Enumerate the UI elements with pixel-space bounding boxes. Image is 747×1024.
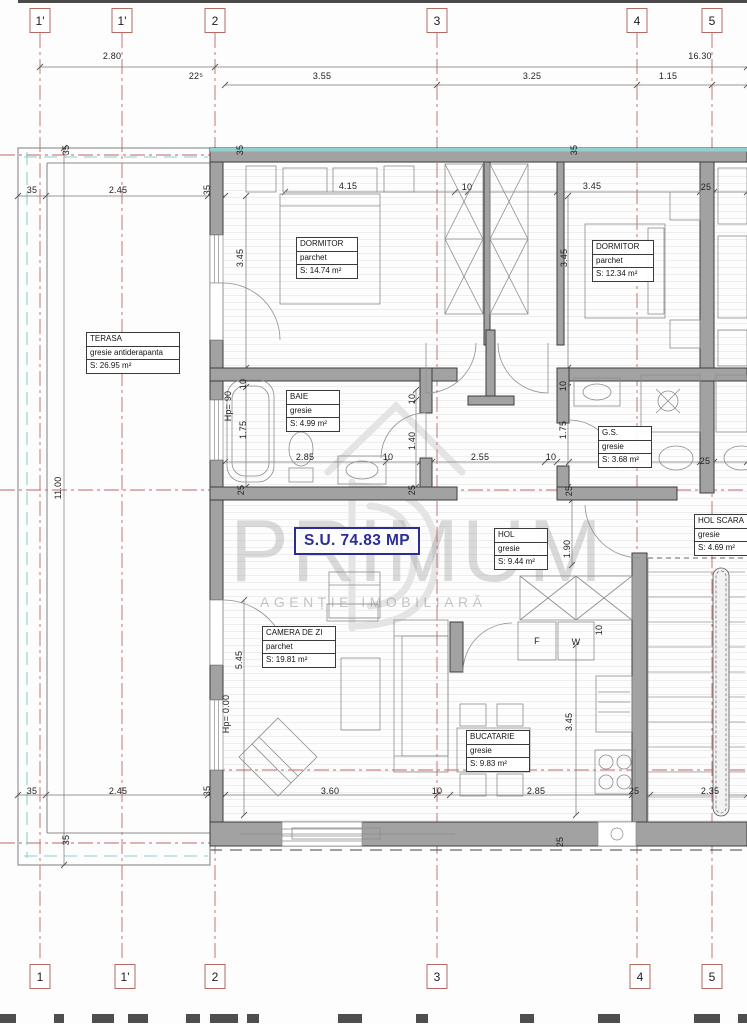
room-label-camera-de-zi: CAMERA DE ZI parchet S: 19.81 m² (262, 626, 336, 668)
total-usable-area-label: S.U. 74.83 MP (294, 527, 420, 555)
room-label-dormitor2: DORMITOR parchet S: 12.34 m² (592, 240, 654, 282)
axis-marker-bottom-5: 5 (702, 964, 723, 989)
room-area: S: 9.83 m² (467, 757, 529, 771)
room-finish: gresie (287, 404, 339, 418)
dim-label: 35 (27, 786, 37, 796)
appliance-label-washer: W (572, 637, 581, 647)
room-label-bucatarie: BUCATARIE gresie S: 9.83 m² (466, 730, 530, 772)
room-finish: parchet (263, 640, 335, 654)
room-area: S: 4.99 m² (287, 417, 339, 431)
axis-marker-top-5: 5 (702, 8, 723, 33)
dim-label: 35 (202, 185, 212, 195)
dim-label: Hp= 90 (223, 391, 233, 421)
top-edge-bar (18, 0, 747, 3)
dim-label: 1.15 (659, 71, 677, 81)
axis-marker-top-1p2: 1' (112, 8, 133, 33)
appliance-label-fridge: F (534, 636, 540, 646)
dim-label: 10 (238, 379, 248, 389)
dim-label: Hp= 0.00 (221, 695, 231, 733)
dim-label: 1.75 (238, 421, 248, 439)
room-label-hol-scara: HOL SCARA gresie S: 4.69 m² (694, 514, 747, 556)
dim-label: 11.00 (53, 477, 63, 500)
dim-label: 10 (594, 625, 604, 635)
dim-label: 3.45 (559, 249, 569, 267)
dim-label: 22⁵ (189, 71, 203, 81)
room-label-dormitor1: DORMITOR parchet S: 14.74 m² (296, 237, 358, 279)
room-name: BUCATARIE (467, 731, 529, 744)
room-name: DORMITOR (593, 241, 653, 254)
axis-marker-top-2: 2 (205, 8, 226, 33)
dim-label: 25 (700, 456, 710, 466)
dim-label: 3.55 (313, 71, 331, 81)
axis-marker-bottom-4: 4 (630, 964, 651, 989)
floorplan-drawing (0, 0, 747, 1024)
dim-label: 10 (462, 182, 472, 192)
room-label-gs: G.S. gresie S: 3.68 m² (598, 426, 652, 468)
axis-marker-bottom-1p: 1' (115, 964, 136, 989)
room-name: HOL (495, 529, 547, 542)
dim-label: 35 (235, 145, 245, 155)
dim-label: 2.85 (527, 786, 545, 796)
room-name: CAMERA DE ZI (263, 627, 335, 640)
room-area: S: 4.69 m² (695, 541, 747, 555)
axis-marker-top-3: 3 (427, 8, 448, 33)
room-name: TERASA (87, 333, 179, 346)
room-label-terasa: TERASA gresie antiderapanta S: 26.95 m² (86, 332, 180, 374)
dim-label: 1.90 (562, 540, 572, 558)
bottom-cutoff-strip (0, 1014, 747, 1023)
room-area: S: 26.95 m² (87, 359, 179, 373)
dim-label: 35 (27, 185, 37, 195)
dim-label: 35 (202, 786, 212, 796)
dim-label: 10 (407, 394, 417, 404)
room-area: S: 9.44 m² (495, 555, 547, 569)
dim-label: 16.30 (688, 51, 712, 61)
insulation-strip (210, 148, 747, 152)
staircase (648, 558, 747, 822)
dim-label: 4.15 (339, 181, 357, 191)
dim-label: 25 (555, 837, 565, 847)
room-area: S: 12.34 m² (593, 267, 653, 281)
dim-label: 2.45 (109, 185, 127, 195)
terrace-dashed-lines (24, 152, 208, 858)
axis-marker-bottom-3: 3 (427, 964, 448, 989)
room-finish: gresie (599, 440, 651, 454)
room-finish: parchet (593, 254, 653, 268)
dim-label: 10 (546, 452, 556, 462)
dim-label: 2.35 (701, 786, 719, 796)
dim-label: 35 (61, 835, 71, 845)
dim-label: 25 (701, 182, 711, 192)
room-finish: gresie (695, 528, 747, 542)
room-name: BAIE (287, 391, 339, 404)
axis-marker-top-1p: 1' (30, 8, 51, 33)
dim-label: 25 (629, 786, 639, 796)
room-name: HOL SCARA (695, 515, 747, 528)
dim-label: 1.75 (558, 421, 568, 439)
axis-marker-bottom-2: 2 (205, 964, 226, 989)
dim-label: 3.60 (321, 786, 339, 796)
floorplan-page: PRIMUM AGENȚIE IMOBILIARĂ (0, 0, 747, 1024)
dim-label: 3.25 (523, 71, 541, 81)
axis-marker-top-4: 4 (627, 8, 648, 33)
dim-label: 3.45 (564, 713, 574, 731)
room-area: S: 14.74 m² (297, 264, 357, 278)
dim-label: 35 (61, 145, 71, 155)
dim-label: 2.80 (103, 51, 121, 61)
room-name: DORMITOR (297, 238, 357, 251)
dim-label: 2.85 (296, 452, 314, 462)
room-finish: gresie antiderapanta (87, 346, 179, 360)
room-area: S: 3.68 m² (599, 453, 651, 467)
dim-label: 2.55 (471, 452, 489, 462)
room-label-baie: BAIE gresie S: 4.99 m² (286, 390, 340, 432)
dim-label: 10 (432, 786, 442, 796)
dim-label: 25 (236, 485, 246, 495)
dim-label: 10 (383, 452, 393, 462)
room-finish: parchet (297, 251, 357, 265)
dim-label: 10 (558, 381, 568, 391)
dim-label: 1.40 (407, 432, 417, 450)
dim-label: 3.45 (583, 181, 601, 191)
room-label-hol: HOL gresie S: 9.44 m² (494, 528, 548, 570)
dim-label: 25 (564, 486, 574, 496)
dim-label: 5.45 (234, 651, 244, 669)
room-area: S: 19.81 m² (263, 653, 335, 667)
room-finish: gresie (495, 542, 547, 556)
room-name: G.S. (599, 427, 651, 440)
dim-label: 3.45 (235, 249, 245, 267)
axis-marker-bottom-1: 1 (30, 964, 51, 989)
terrace-outline (18, 148, 210, 865)
dim-label: 25 (407, 485, 417, 495)
dim-label: 35 (569, 145, 579, 155)
room-finish: gresie (467, 744, 529, 758)
dim-label: 2.45 (109, 786, 127, 796)
